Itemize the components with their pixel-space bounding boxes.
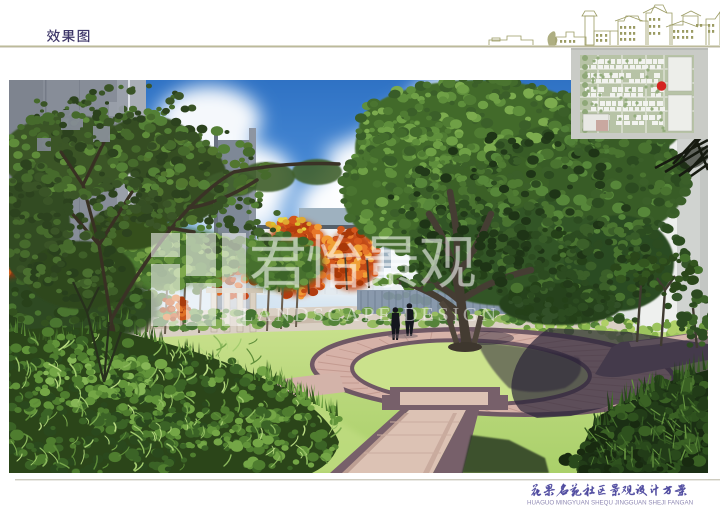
svg-text:LANDSCAPE DESIGN: LANDSCAPE DESIGN [241, 304, 500, 326]
svg-text:HUAGUO MINGYUAN SHEQU JINGGUAN: HUAGUO MINGYUAN SHEQU JINGGUAN SHEJI FAN… [527, 500, 693, 507]
